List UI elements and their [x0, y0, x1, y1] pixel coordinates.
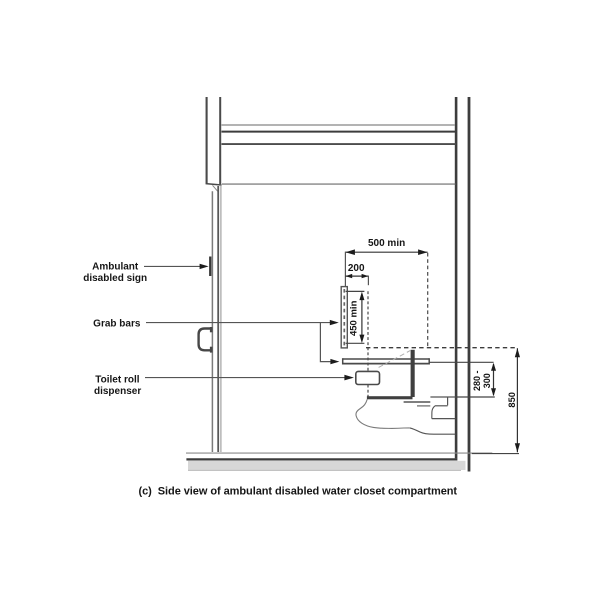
svg-text:500 min: 500 min	[368, 238, 405, 249]
svg-text:850: 850	[507, 392, 517, 408]
svg-text:dispenser: dispenser	[94, 386, 141, 397]
svg-text:Ambulant: Ambulant	[92, 262, 139, 273]
svg-text:disabled sign: disabled sign	[83, 273, 147, 284]
svg-text:Grab bars: Grab bars	[93, 318, 141, 329]
svg-text:200: 200	[348, 263, 365, 274]
svg-text:(c) Side view of ambulant dis: (c) Side view of ambulant disabled water…	[139, 485, 458, 497]
svg-text:450 min: 450 min	[349, 300, 360, 336]
svg-text:280 -300: 280 -300	[472, 370, 492, 391]
svg-text:Toilet roll: Toilet roll	[95, 375, 139, 386]
